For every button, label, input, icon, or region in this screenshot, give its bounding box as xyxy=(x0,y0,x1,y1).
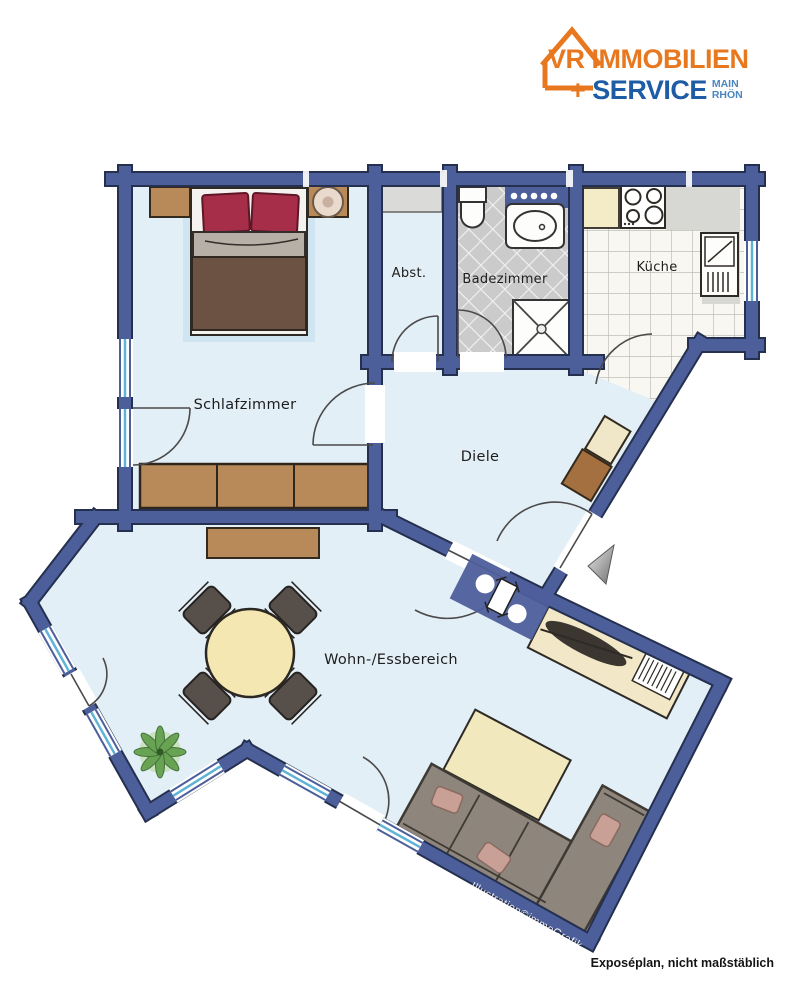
logo-line2: + SERVICEMAINRHÖN xyxy=(570,75,743,106)
kitchen-counter-block xyxy=(579,188,619,228)
logo-plus: + xyxy=(570,75,585,105)
room-label-schlafzimmer: Schlafzimmer xyxy=(194,397,297,413)
shower xyxy=(513,300,570,358)
washbasin xyxy=(506,204,564,248)
refrigerator xyxy=(701,233,738,296)
floorplan-page: Schlafzimmer Abst. Badezimmer Küche Diel… xyxy=(0,0,788,1000)
sideboard-living xyxy=(207,528,319,558)
entrance-arrow-icon xyxy=(588,545,614,584)
logo-region-line2: RHÖN xyxy=(712,89,743,101)
room-label-kueche: Küche xyxy=(636,260,677,275)
floorplan-drawing: Schlafzimmer Abst. Badezimmer Küche Diel… xyxy=(0,0,788,1000)
footer-note: Exposéplan, nicht maßstäblich xyxy=(591,956,774,970)
kitchen-counter-top xyxy=(666,186,740,230)
room-label-badezimmer: Badezimmer xyxy=(462,272,548,287)
logo-region: MAINRHÖN xyxy=(712,79,743,101)
nightstand-left xyxy=(150,187,190,217)
logo-service: SERVICE xyxy=(592,75,707,105)
toilet xyxy=(459,187,486,228)
bed xyxy=(183,188,315,342)
storage-shelf xyxy=(380,186,442,212)
wardrobe xyxy=(140,464,370,508)
room-label-wohn-essbereich: Wohn-/Essbereich xyxy=(324,652,458,668)
room-label-abstellraum: Abst. xyxy=(392,266,427,281)
nightstand-right xyxy=(308,186,348,217)
room-label-diele: Diele xyxy=(461,449,500,465)
company-logo: VR IMMOBILIEN + SERVICEMAINRHÖN xyxy=(532,20,784,112)
plant xyxy=(134,726,186,778)
stove xyxy=(621,185,665,228)
logo-brand: VR IMMOBILIEN xyxy=(548,44,749,75)
